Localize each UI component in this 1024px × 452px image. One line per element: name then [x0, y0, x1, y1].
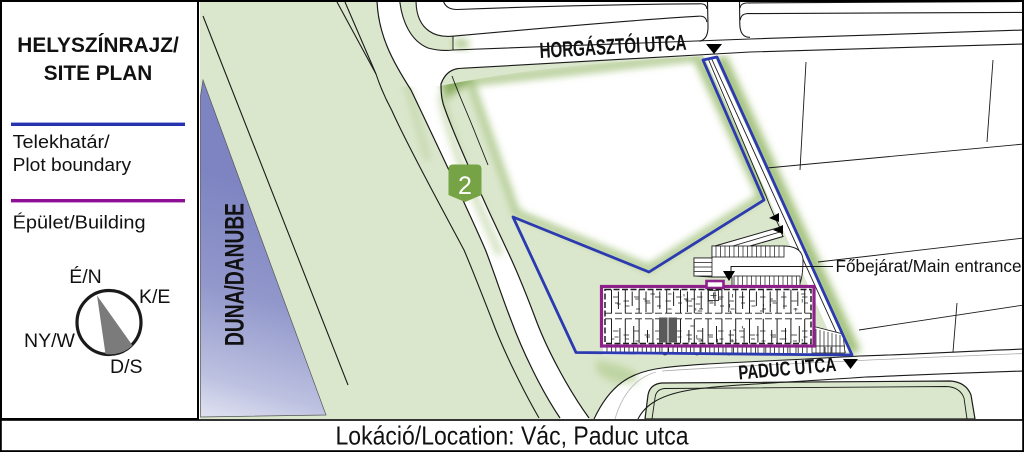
- svg-text:NY/W: NY/W: [24, 330, 76, 352]
- svg-text:K/E: K/E: [139, 286, 170, 308]
- svg-text:Lokáció/Location: Vác, Paduc u: Lokáció/Location: Vác, Paduc utca: [336, 421, 689, 451]
- svg-text:Telekhatár/: Telekhatár/: [13, 132, 110, 152]
- svg-text:HELYSZÍNRAJZ/: HELYSZÍNRAJZ/: [17, 32, 179, 57]
- svg-text:D/S: D/S: [110, 356, 143, 378]
- svg-text:DUNA/DANUBE: DUNA/DANUBE: [220, 203, 250, 346]
- svg-text:Plot boundary: Plot boundary: [13, 155, 132, 175]
- svg-text:É/N: É/N: [69, 265, 102, 288]
- svg-text:SITE PLAN: SITE PLAN: [44, 61, 153, 85]
- svg-text:Főbejárat/Main entrance: Főbejárat/Main entrance: [836, 256, 1022, 276]
- svg-text:2: 2: [458, 172, 472, 200]
- svg-text:Épület/Building: Épület/Building: [13, 212, 146, 232]
